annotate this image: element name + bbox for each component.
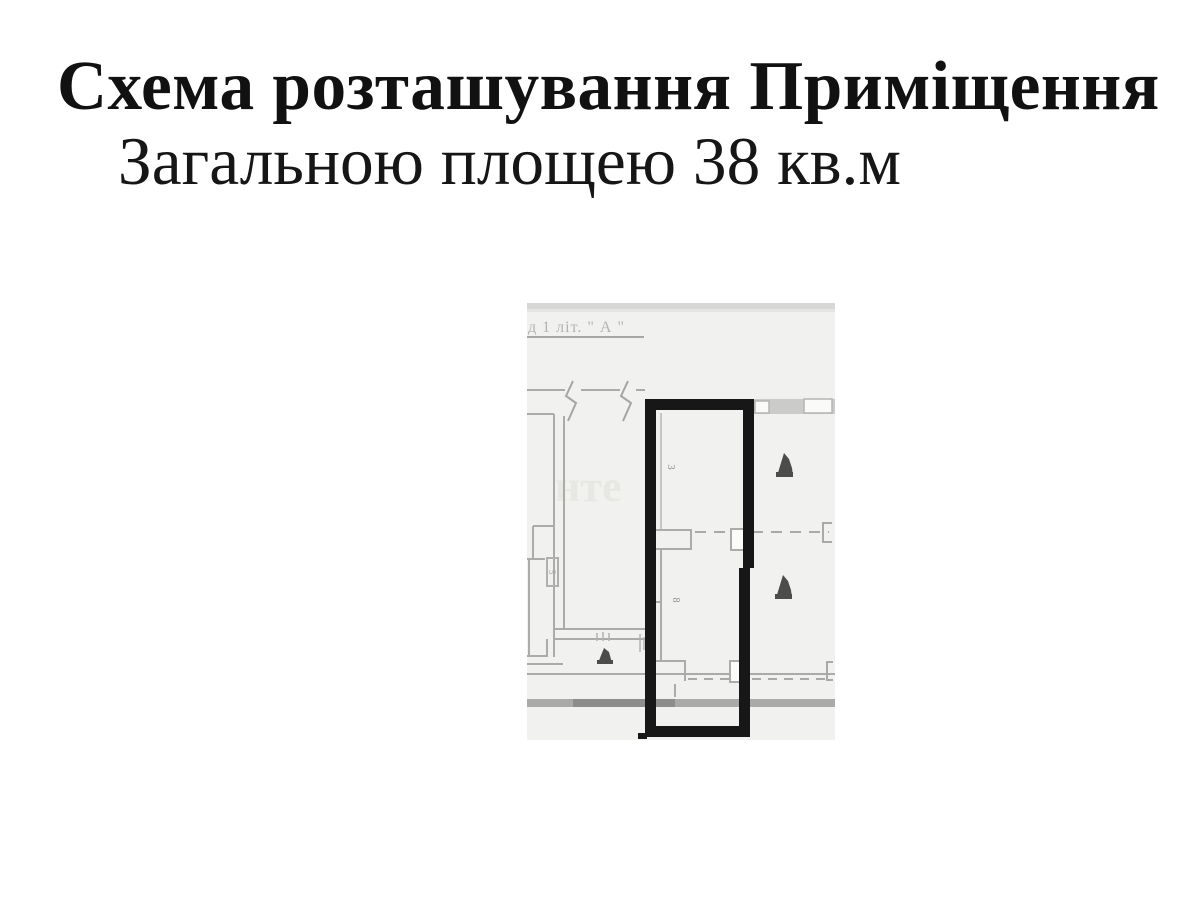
window-icon bbox=[755, 401, 769, 413]
page-subtitle-area: Загальною площею 38 кв.м bbox=[118, 127, 901, 195]
floor-plan-svg: нте д 1 літ. " А " bbox=[527, 303, 835, 740]
room-number-closet: 5 bbox=[547, 570, 557, 575]
floor-plan-image: нте д 1 літ. " А " bbox=[527, 303, 835, 740]
premises-outline-foot bbox=[638, 733, 647, 739]
plan-caption: д 1 літ. " А " bbox=[528, 319, 625, 336]
corridor-wall-bar-dark bbox=[573, 699, 675, 707]
scan-edge-band bbox=[527, 303, 835, 309]
room-number-upper: 3 bbox=[665, 464, 677, 470]
page-title: Схема розташування Приміщення bbox=[57, 52, 1160, 122]
scan-edge-fade bbox=[527, 309, 835, 312]
room-number-lower: 8 bbox=[670, 598, 681, 603]
window-icon bbox=[804, 399, 832, 413]
document-page: Схема розташування Приміщення Загальною … bbox=[0, 0, 1200, 900]
